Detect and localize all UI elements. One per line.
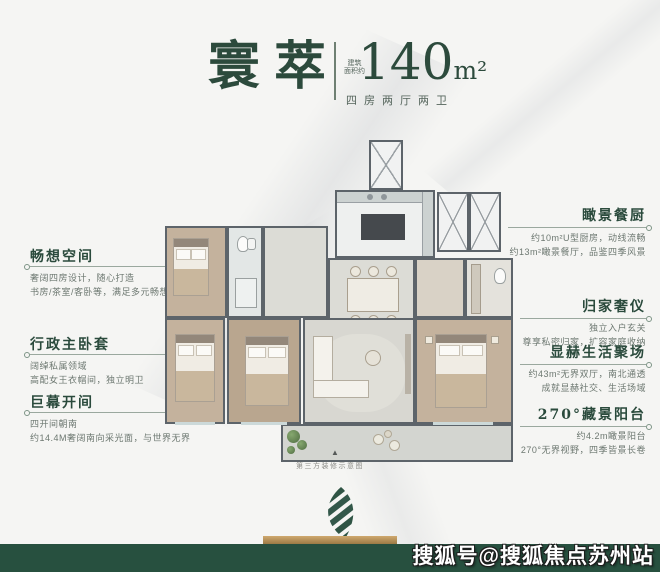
- tv-cabinet: [405, 334, 411, 394]
- poster-canvas: 寰萃 建筑 面积约 140m² 四房两厅两卫 畅想空间 奢阔四房设计，随心打造 …: [0, 0, 660, 572]
- area-unit: m²: [453, 56, 487, 85]
- master-closet-bath: [465, 258, 513, 318]
- leader-dot: [24, 410, 30, 416]
- leader-line: [520, 318, 646, 319]
- pouf: [373, 434, 384, 445]
- leader-line: [30, 412, 172, 413]
- living-room: [303, 318, 415, 424]
- kitchen-counter: [422, 192, 433, 256]
- coffee-table: [365, 350, 381, 366]
- elevator-shaft: [437, 192, 469, 252]
- leader-line: [508, 227, 646, 228]
- window: [175, 422, 215, 425]
- bedroom-south-2: [227, 318, 301, 424]
- bathroom-north: [227, 226, 263, 318]
- bed: [175, 334, 215, 402]
- nightstand: [491, 336, 499, 344]
- nightstand: [425, 336, 433, 344]
- bedroom-south-1: [165, 318, 225, 424]
- floor-plan: [163, 136, 515, 466]
- entry-foyer: [415, 258, 465, 318]
- leader-dot: [646, 225, 652, 231]
- annotation-body: 约43m²无界双厅，南北通透 成就显赫社交、生活场域: [528, 368, 646, 395]
- annotation-body: 约4.2m瞰景阳台 270°无界视野，四季皆景长卷: [521, 430, 646, 457]
- plant: [287, 446, 295, 454]
- stair-shaft: [369, 140, 403, 190]
- bedroom-north: [165, 226, 227, 318]
- leader-line: [30, 266, 172, 267]
- annotation-title: 270°藏景阳台: [538, 404, 646, 424]
- leader-dot: [646, 424, 652, 430]
- annotation-body: 奢阔四房设计，随心打造 书房/茶室/客卧等，满足多元畅想: [30, 272, 169, 299]
- dining-chair: [350, 266, 361, 277]
- sink: [247, 238, 256, 250]
- bathtub: [235, 278, 257, 308]
- leader-dot: [646, 362, 652, 368]
- kitchen-island: [361, 214, 405, 240]
- dining-chair: [386, 266, 397, 277]
- leader-dot: [646, 316, 652, 322]
- kitchen: [335, 190, 435, 258]
- stove-burner: [381, 194, 387, 200]
- toilet: [494, 268, 506, 284]
- watermark: 搜狐号@搜狐焦点苏州站: [413, 540, 654, 570]
- bed: [245, 336, 289, 406]
- hallway: [263, 226, 328, 318]
- north-arrow-icon: ▲: [331, 448, 339, 457]
- annotation-title: 瞰景餐厨: [582, 205, 646, 225]
- annotation-title: 行政主卧套: [30, 334, 110, 354]
- master-bed: [435, 334, 487, 408]
- side-table: [384, 430, 392, 438]
- window: [433, 422, 493, 425]
- leader-line: [30, 354, 172, 355]
- stove-burner: [367, 194, 373, 200]
- bed: [173, 238, 209, 296]
- annotation-title: 显赫生活聚场: [550, 342, 646, 362]
- plan-disclaimer: 第三方装修示意图: [0, 461, 660, 471]
- wardrobe: [471, 264, 481, 314]
- pouf: [389, 440, 400, 451]
- room-count-label: 四房两厅两卫: [346, 92, 454, 108]
- leader-dot: [24, 264, 30, 270]
- annotation-title: 归家奢仪: [582, 296, 646, 316]
- dining-chair: [368, 266, 379, 277]
- area-value: 140m²: [358, 34, 487, 99]
- sofa: [313, 380, 369, 398]
- title-divider: [334, 42, 336, 100]
- dining-table: [347, 278, 399, 312]
- annotation-title: 巨幕开间: [30, 392, 94, 412]
- window: [241, 422, 287, 425]
- leader-dot: [24, 352, 30, 358]
- page-title: 寰萃: [208, 38, 340, 96]
- balcony: [281, 424, 513, 462]
- annotation-body: 约10m²U型厨房，动线流畅 约13m²瞰景餐厅，品鉴四季风景: [509, 232, 646, 259]
- annotation-body: 阔绰私属领域 高配女王衣帽间，独立明卫: [30, 360, 144, 387]
- elevator-shaft: [469, 192, 501, 252]
- gold-bar: [263, 536, 397, 544]
- plant: [297, 440, 307, 450]
- annotation-title: 畅想空间: [30, 246, 94, 266]
- master-bedroom: [415, 318, 513, 424]
- leader-line: [520, 426, 646, 427]
- leader-line: [520, 364, 646, 365]
